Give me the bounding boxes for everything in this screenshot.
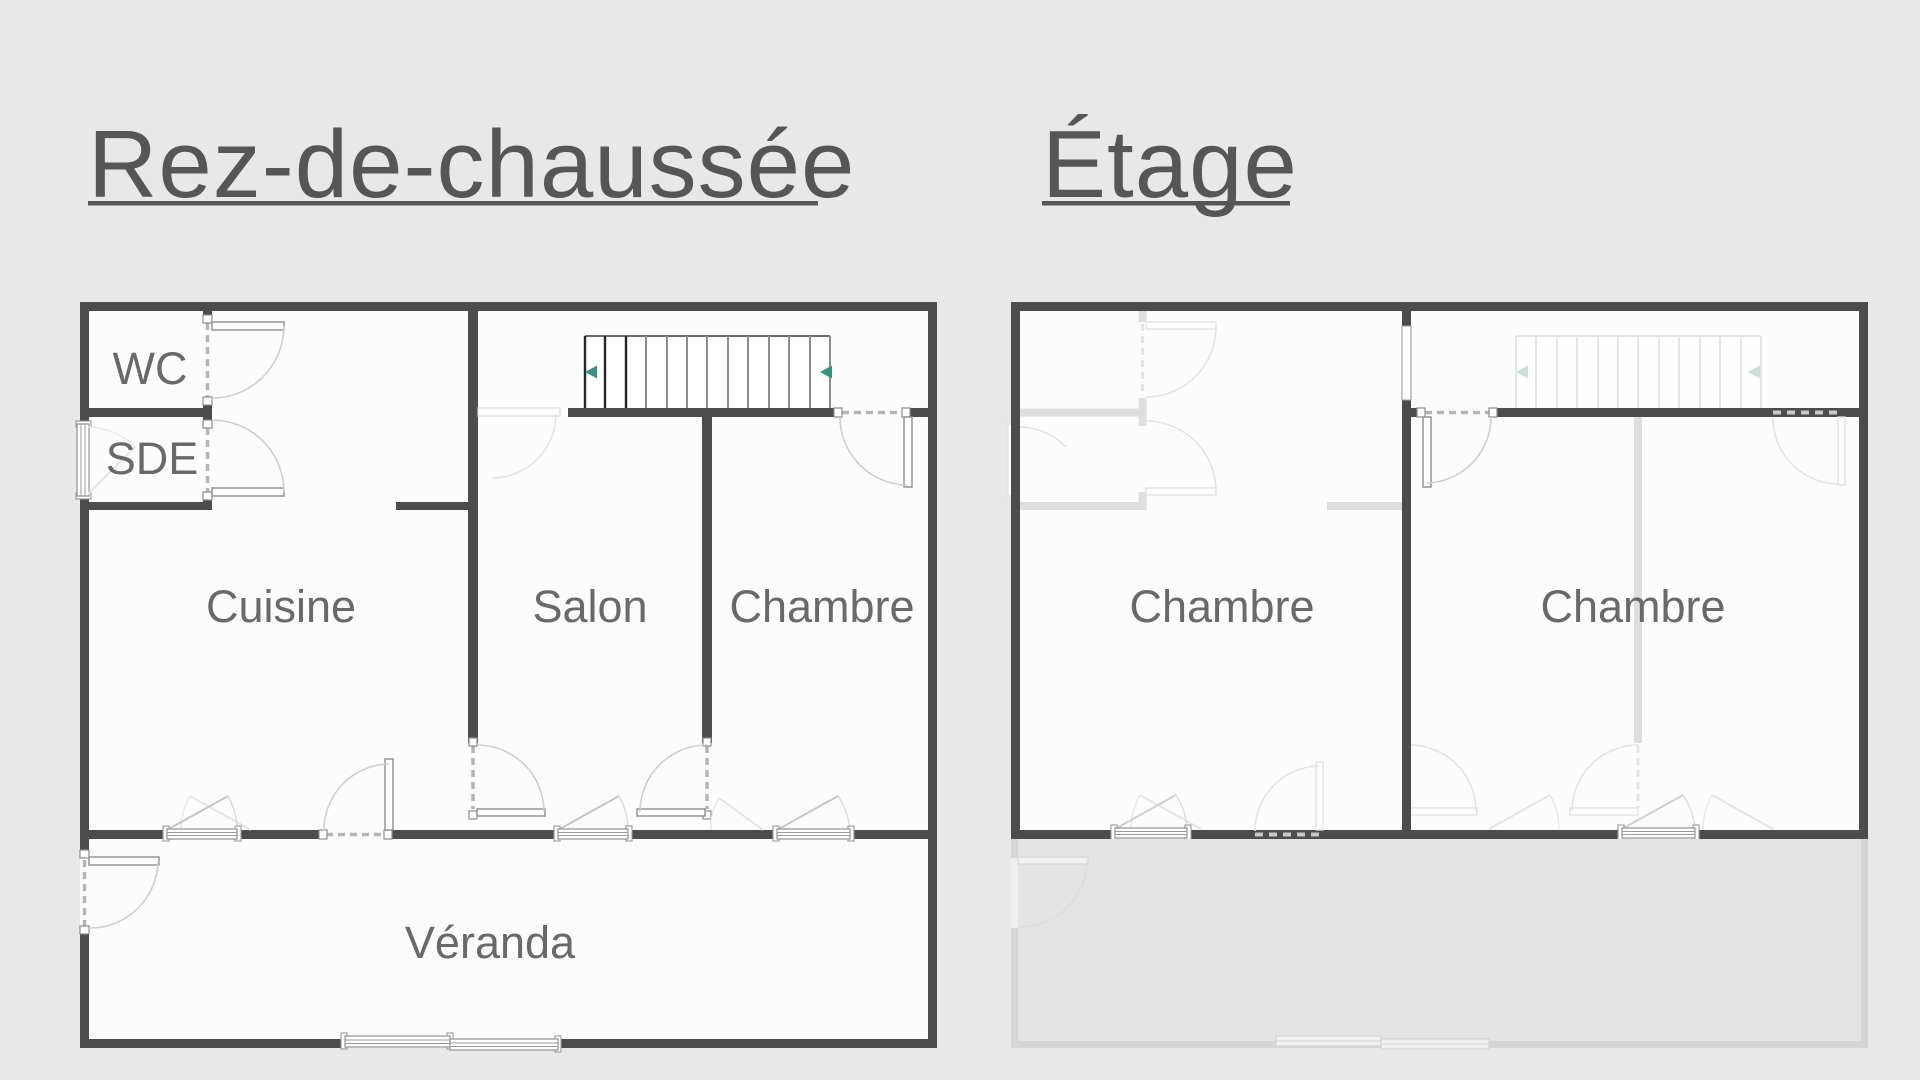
stairs-upper-ghost [1516,336,1761,408]
wall-right [1859,302,1868,839]
floor-plan-ground: WC SDE Cuisine Salon Chambre Véranda [76,302,937,1052]
ghost-veranda [1011,839,1868,1049]
door-hinge [80,850,89,858]
door-panel [212,322,284,330]
opening-chambre-door [840,408,910,417]
opening-chambre-door [1423,408,1493,417]
door-hinge [1417,408,1425,417]
room-label-wc: WC [113,343,188,394]
floor-plan-upper: Chambre Chambre [1008,302,1868,1049]
wall-left [80,302,89,1048]
door-hinge [902,408,910,417]
door-panel [637,809,705,816]
opening-veranda-left-door [80,858,89,928]
door-hinge [203,397,212,405]
room-label-chambre-upper-left: Chambre [1129,581,1314,632]
door-hinge [469,738,477,746]
ghost-door-panel [1570,808,1638,815]
door-hinge [203,492,212,500]
door-hinge [1489,408,1497,417]
ghost-door-panel [1410,808,1477,815]
room-label-salon: Salon [532,581,647,632]
door-panel [89,857,159,865]
wall-stub [396,502,468,510]
wall-sde-bottom [80,502,212,510]
room-label-veranda: Véranda [405,917,576,968]
door-panel [212,488,284,496]
title-ground-floor-underline [88,201,818,206]
window-frame [167,829,237,839]
room-label-sde: SDE [106,433,199,484]
door-hinge [80,926,89,934]
window-frame [558,829,628,839]
ghost-veranda-door-opening [1011,858,1018,928]
ghost-door-panel [1316,762,1323,830]
wall-cuisine-salon [468,311,478,743]
door-panel [904,417,912,487]
ghost-veranda-area [1011,839,1868,1048]
door-hinge [319,830,327,839]
door-hinge [203,315,212,323]
light-rail [478,408,560,416]
window-frame [777,829,850,839]
door-hinge [384,830,392,839]
stairs-ground [585,336,832,408]
ghost-door-panel [1838,417,1845,485]
opening-sde-door [203,426,212,494]
divider-niche [1402,326,1411,400]
window-frame [1115,828,1187,838]
window-frame [345,1036,450,1047]
title-upper-floor-underline [1042,201,1290,206]
wall-top [1011,302,1868,311]
window-frame [77,424,89,496]
room-label-cuisine: Cuisine [206,581,356,632]
door-hinge [469,811,477,819]
ghost-veranda-door-panel [1018,857,1088,864]
door-panel [1423,417,1431,487]
door-panel [477,809,545,816]
floor-plans-canvas: Rez-de-chaussée Étage [0,0,1920,1080]
window-frame [450,1039,558,1050]
door-hinge [834,408,842,417]
window-frame [1622,828,1695,838]
door-hinge [203,420,212,428]
room-label-chambre-ground: Chambre [729,581,914,632]
door-panel [385,759,393,830]
ghost-door-panel [1146,322,1216,329]
wall-wc-bottom [89,408,212,417]
room-label-chambre-upper-right: Chambre [1540,581,1725,632]
wall-left [1011,302,1020,839]
wall-salon-chambre [702,408,712,743]
ghost-door-panel [1146,488,1216,495]
ghost-veranda-wall [1861,839,1868,1048]
